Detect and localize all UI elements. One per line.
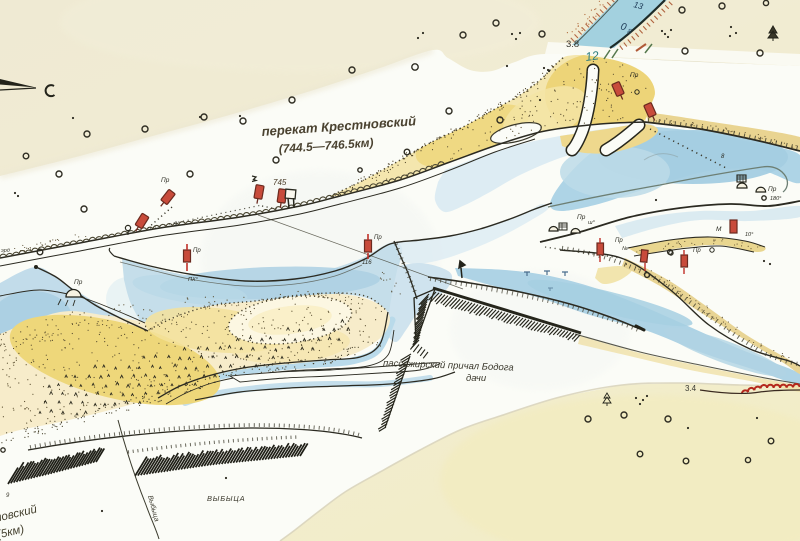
svg-text:Пр: Пр xyxy=(193,248,201,254)
svg-text:Пр: Пр xyxy=(577,214,586,221)
svg-text:Пр: Пр xyxy=(630,72,639,79)
svg-text:ВЫБЫЦА: ВЫБЫЦА xyxy=(207,494,245,503)
svg-text:М: М xyxy=(716,226,722,233)
svg-text:ш°: ш° xyxy=(588,220,596,226)
svg-text:дачи: дачи xyxy=(466,373,487,384)
svg-text:эрд: эрд xyxy=(1,248,10,254)
svg-text:Пр: Пр xyxy=(74,279,83,286)
svg-text:3.8: 3.8 xyxy=(566,39,579,50)
svg-text:10°: 10° xyxy=(745,232,754,238)
svg-text:№: № xyxy=(622,246,628,252)
svg-text:Пр: Пр xyxy=(374,235,382,241)
svg-text:12: 12 xyxy=(584,48,599,64)
svg-text:Пр: Пр xyxy=(615,238,623,244)
svg-text:180°: 180° xyxy=(770,196,782,202)
svg-text:Пр: Пр xyxy=(693,248,701,254)
svg-text:Пр: Пр xyxy=(768,186,777,193)
svg-text:ПХ°: ПХ° xyxy=(188,277,199,283)
svg-text:Пр: Пр xyxy=(161,177,170,184)
svg-text:3.4: 3.4 xyxy=(685,384,697,393)
svg-text:116: 116 xyxy=(362,260,372,266)
svg-text:745: 745 xyxy=(273,178,287,187)
